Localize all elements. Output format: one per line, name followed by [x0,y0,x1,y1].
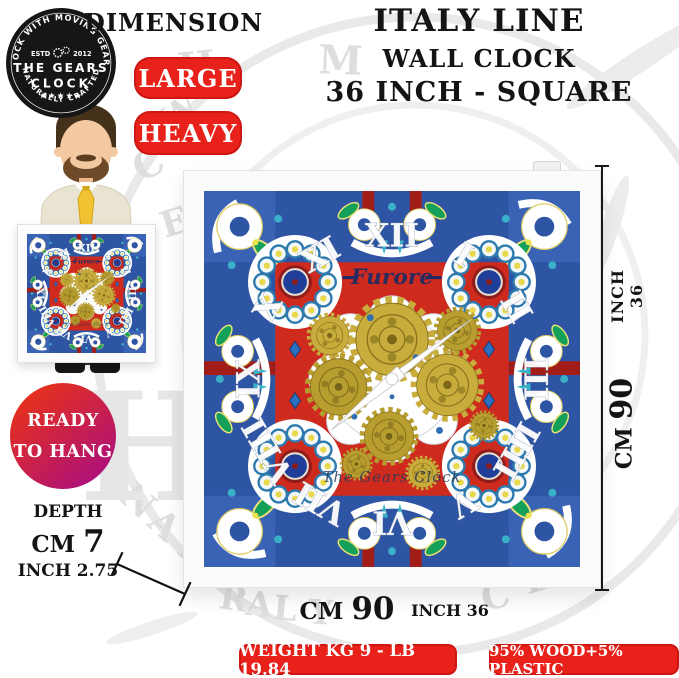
svg-text:A: A [243,584,275,627]
product-infographic: T H M W C E N A T R A L Y C B E H [0,0,679,678]
depth-label: DEPTH [10,502,126,522]
small-clock-face [27,234,146,353]
ready-to-hang-badge: READY TO HANG [10,383,116,489]
bottom-cm-label: CM 90 [284,591,410,627]
heavy-badge: HEAVY [134,111,242,155]
weight-badge: WEIGHT KG 9 - LB 19.84 [239,644,457,675]
depth-pointer-line [103,548,203,610]
side-cm-label: CM 90 [605,376,640,472]
product-size-line: 36 INCH - SQUARE [318,77,640,109]
material-badge: 95% WOOD+5% PLASTIC [489,644,679,675]
product-subtitle: WALL CLOCK [318,45,640,74]
main-clock-face [204,191,580,567]
side-inch-label: INCH 36 [608,254,646,338]
small-clock-preview [17,224,156,363]
product-title: ITALY LINE [318,4,640,40]
large-badge: LARGE [134,57,242,99]
ready-line-1: READY [10,406,116,437]
title-block: ITALY LINE WALL CLOCK 36 INCH - SQUARE [318,4,640,110]
main-clock [183,170,601,588]
logo-estd: ESTD [31,50,51,58]
ready-line-2: TO HANG [10,437,116,468]
bottom-inch-label: INCH 36 [408,601,492,620]
dimension-label: DIMENSION [84,8,263,37]
logo-year: 2012 [73,50,92,58]
